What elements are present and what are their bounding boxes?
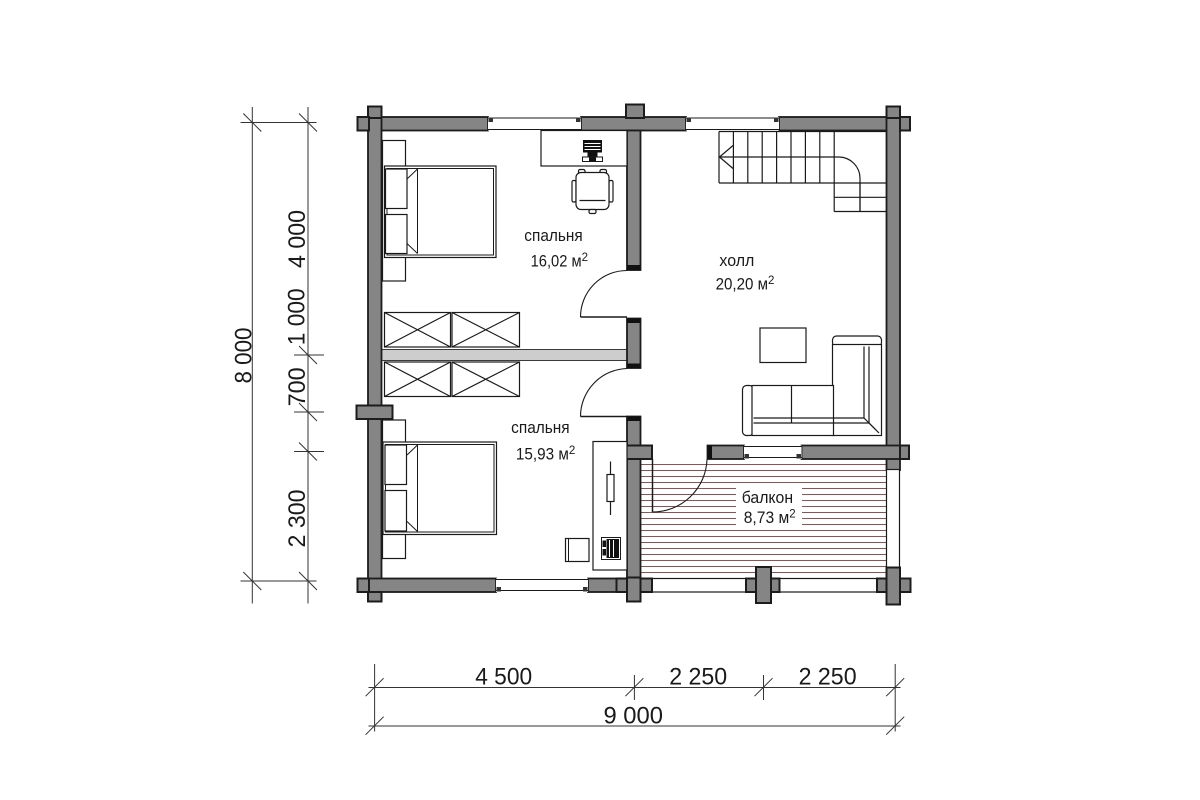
svg-text:спальня: спальня: [511, 418, 570, 437]
svg-text:4 500: 4 500: [475, 664, 532, 691]
svg-text:9 000: 9 000: [603, 702, 663, 729]
svg-text:балкон: балкон: [742, 488, 793, 507]
svg-text:16,02 м2: 16,02 м2: [531, 252, 588, 271]
svg-text:1 000: 1 000: [284, 288, 311, 345]
svg-text:700: 700: [284, 367, 311, 406]
svg-text:20,20 м2: 20,20 м2: [716, 275, 775, 294]
svg-text:15,93 м2: 15,93 м2: [516, 445, 575, 464]
svg-text:2 250: 2 250: [669, 664, 727, 691]
svg-text:холл: холл: [719, 251, 754, 270]
svg-text:8 000: 8 000: [230, 328, 257, 384]
svg-text:4 000: 4 000: [284, 210, 311, 268]
svg-text:спальня: спальня: [524, 226, 582, 245]
svg-text:8,73 м2: 8,73 м2: [744, 508, 796, 527]
svg-text:2 250: 2 250: [799, 664, 857, 691]
svg-text:2 300: 2 300: [284, 490, 311, 548]
